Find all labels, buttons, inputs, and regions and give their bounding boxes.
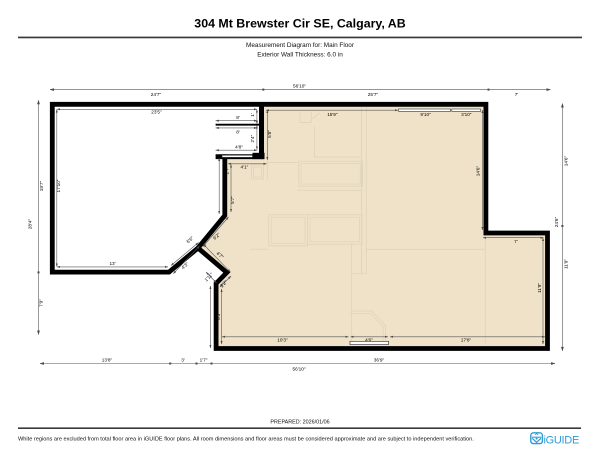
svg-text:7'9": 7'9": [38, 299, 43, 307]
svg-text:17'8": 17'8": [461, 338, 472, 343]
svg-text:White regions are excluded fro: White regions are excluded from total fl…: [18, 437, 474, 443]
svg-text:Measurement Diagram for: Main: Measurement Diagram for: Main Floor: [246, 42, 355, 49]
svg-text:iGUIDE: iGUIDE: [544, 434, 579, 446]
svg-text:28'4": 28'4": [27, 218, 32, 229]
svg-text:1'7": 1'7": [200, 358, 208, 363]
svg-text:7': 7': [514, 239, 518, 244]
svg-text:5'7": 5'7": [230, 196, 235, 204]
svg-text:4'1": 4'1": [241, 164, 249, 169]
svg-text:15'9": 15'9": [327, 112, 338, 117]
svg-text:10'3": 10'3": [277, 338, 288, 343]
svg-text:24'6": 24'6": [554, 216, 559, 227]
svg-text:19'7": 19'7": [39, 180, 44, 191]
svg-text:17'10": 17'10": [56, 179, 61, 192]
svg-text:4'6": 4'6": [365, 338, 373, 343]
svg-text:25'7": 25'7": [368, 92, 379, 97]
svg-text:PREPARED: 2026/01/06: PREPARED: 2026/01/06: [270, 420, 329, 426]
svg-text:3'10": 3'10": [461, 112, 472, 117]
svg-text:8': 8': [236, 115, 240, 120]
svg-text:14'6": 14'6": [564, 155, 569, 166]
svg-text:24'7": 24'7": [151, 92, 162, 97]
svg-text:2'4": 2'4": [250, 134, 255, 142]
svg-text:3': 3': [181, 358, 185, 363]
svg-text:4'8": 4'8": [235, 145, 243, 150]
svg-text:8': 8': [236, 129, 240, 134]
svg-text:56'10": 56'10": [293, 367, 306, 372]
svg-text:13': 13': [109, 261, 115, 266]
svg-text:56'10": 56'10": [293, 83, 306, 88]
svg-text:23'5": 23'5": [151, 110, 162, 115]
svg-text:11'9": 11'9": [564, 259, 569, 269]
svg-text:1': 1': [250, 113, 255, 117]
svg-text:7': 7': [515, 92, 519, 97]
svg-text:13'8": 13'8": [102, 358, 113, 363]
svg-text:304 Mt Brewster Cir SE, Calgar: 304 Mt Brewster Cir SE, Calgary, AB: [194, 16, 405, 30]
svg-text:6'3": 6'3": [216, 312, 221, 320]
svg-text:Exterior Wall Thickness: 6.0 i: Exterior Wall Thickness: 6.0 in: [257, 52, 343, 59]
svg-text:14'6": 14'6": [476, 165, 481, 176]
svg-text:5'8": 5'8": [267, 130, 272, 138]
svg-text:11'9": 11'9": [537, 283, 542, 293]
svg-text:2'7": 2'7": [225, 166, 230, 174]
svg-text:36'9": 36'9": [374, 358, 385, 363]
svg-text:9'10": 9'10": [420, 112, 431, 117]
